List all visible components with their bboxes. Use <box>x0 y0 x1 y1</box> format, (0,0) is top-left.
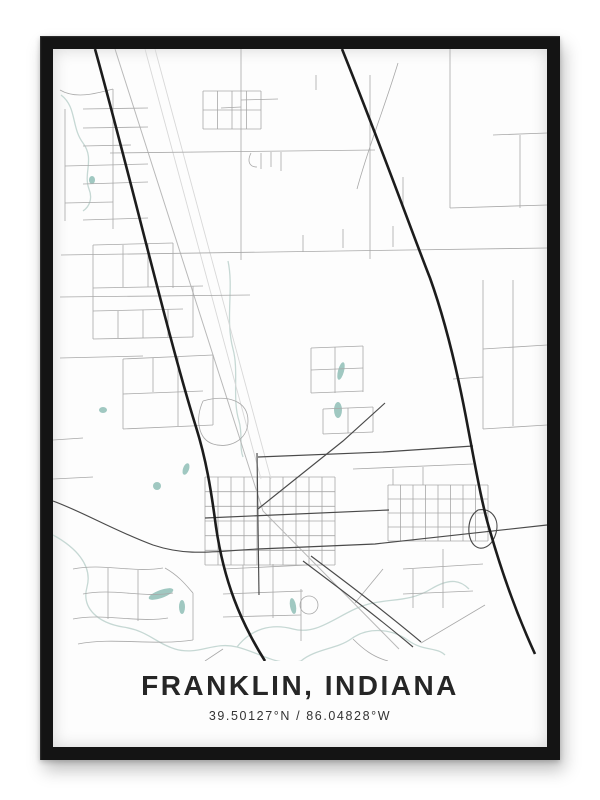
map-poster: FRANKLIN, INDIANA 39.50127°N / 86.04828°… <box>53 49 547 747</box>
poster-caption: FRANKLIN, INDIANA 39.50127°N / 86.04828°… <box>53 661 547 723</box>
poster-frame: FRANKLIN, INDIANA 39.50127°N / 86.04828°… <box>40 36 560 760</box>
city-map <box>53 49 547 661</box>
poster-coordinates: 39.50127°N / 86.04828°W <box>53 709 547 723</box>
page-background: FRANKLIN, INDIANA 39.50127°N / 86.04828°… <box>0 0 600 800</box>
poster-title: FRANKLIN, INDIANA <box>53 670 547 702</box>
